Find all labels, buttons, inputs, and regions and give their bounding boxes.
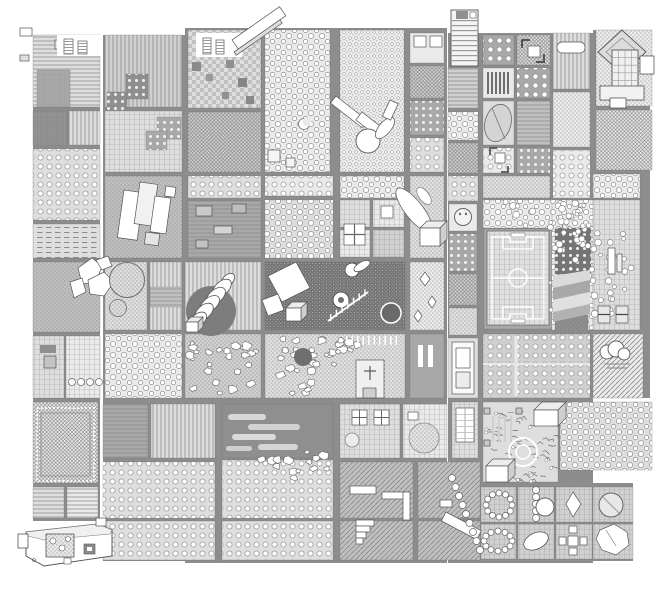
city-block-texture [67,487,98,518]
flower-tree-blob [591,310,598,317]
city-block-texture [553,92,590,147]
garden-dot [545,459,548,462]
feature-rect [408,412,418,420]
feature-rect [226,446,252,451]
feature-rect [214,226,232,234]
rock-shape [307,367,316,375]
tower-floor-line [452,45,477,46]
feature-circle [455,209,472,226]
bead-tree [507,508,513,514]
bar-mark [390,336,392,345]
city-block-texture [410,262,444,330]
city-block-texture [33,224,100,258]
bar-mark [216,45,224,46]
feature-rect [414,36,426,47]
feature-rect [430,36,442,47]
bar-mark [396,336,398,345]
bar-mark [374,336,376,345]
flower-tree-blob [605,278,611,284]
tower-floor-line [452,35,477,36]
bead-tree [473,538,480,545]
garden-dot [512,446,515,449]
feature-rect [569,548,577,555]
feature-rect [192,62,201,71]
feature-rect [232,204,246,213]
bar-mark [341,306,342,313]
bead-tree [96,379,103,386]
masterplan-drawing [0,0,670,601]
city-block-texture [410,66,444,98]
city-block-texture [188,112,261,172]
bar-mark [456,414,474,415]
flower-tree-blob [595,231,600,236]
flower-tree-blob [552,245,558,251]
bar-mark [495,72,497,94]
bar-mark [203,43,211,44]
city-block-texture [449,234,477,271]
house-wing [18,534,28,548]
city-block-texture [340,200,370,227]
feature-rect [557,42,585,53]
flower-tree-blob [622,237,626,241]
flower-tree-blob [585,243,590,248]
feature-rect [456,372,470,388]
bead-tree [483,533,489,539]
bar-mark [456,432,474,433]
city-block-texture [69,111,100,145]
bead-tree [502,547,508,553]
garden-dot [530,473,533,476]
city-block-texture [517,101,550,145]
city-block-texture [483,35,514,65]
soccer-pitch [487,231,549,325]
feature-circle-texture [409,423,439,453]
bead-tree [503,512,509,518]
bead-tree [507,533,513,539]
bead-tree [496,490,502,496]
bead-tree [488,547,494,553]
city-block-texture [340,521,413,560]
bar-mark [64,41,73,42]
bar-mark [385,336,387,345]
flower-tree-blob [559,205,566,212]
city-block-texture [103,404,148,458]
flower-tree-blob [612,285,616,289]
flower-tree-blob [559,215,563,219]
feature-rect [196,206,212,216]
city-block-texture [103,521,215,560]
flower-tree-blob [547,224,553,230]
bead-tree [507,496,513,502]
city-block-texture [107,92,127,112]
courtyard-tree [59,545,65,551]
flower-tree-blob [561,230,566,235]
city-block-texture [483,334,590,398]
bead-tree [452,484,459,491]
bead-tree [485,496,491,502]
tower-cap-box [470,12,476,18]
city-block-texture [410,101,444,135]
city-block-texture [265,200,333,258]
bead-tree [502,529,508,535]
bar-mark [336,310,337,317]
house-small-room [64,558,71,564]
feature-rect [484,408,490,414]
bar-mark [368,336,370,345]
flower-tree-blob [620,231,625,236]
city-block-texture [448,112,478,140]
house-chimney [96,518,106,526]
feature-rect [403,492,410,520]
flower-tree-blob [590,278,596,284]
bead-tree [496,514,502,520]
feature-circle [294,348,312,366]
flower-tree-blob [622,268,628,274]
feature-rect [20,55,29,61]
city-block-texture [517,68,550,98]
bar-mark [78,52,87,53]
city-block-texture [517,148,550,173]
flower-tree-blob [586,223,591,228]
bar-mark [216,51,224,52]
bead-tree [485,508,491,514]
feature-rect [226,60,234,68]
feature-rect [350,486,376,494]
feature-rect [356,526,370,532]
church-porch [610,98,626,108]
tower-floor-line [452,60,477,61]
feature-circle [465,213,467,215]
city-block-texture [37,70,70,107]
feature-rect [356,532,366,538]
feature-circle-texture [110,300,127,317]
bead-tree [449,475,456,482]
rock-shape [224,348,230,354]
city-block-texture [188,176,261,198]
city-block-texture [553,33,590,89]
bar-mark [78,46,87,47]
bead-tree [533,515,540,522]
bead-tree [456,493,463,500]
flower-tree-blob [575,212,579,216]
feature-rect [456,348,470,368]
bar-mark [510,416,512,442]
bar-mark [357,336,359,345]
feature-rect [246,96,254,104]
flower-tree-blob [576,229,581,234]
tower-floor-line [452,50,477,51]
feature-rect [248,424,300,430]
feature-rect [286,158,295,167]
tower-floor-line [452,20,477,21]
courtyard-tree [50,538,56,544]
city-block-texture [593,174,640,198]
bar-mark [203,46,211,47]
feature-rect [196,240,208,248]
axon-building-front [286,308,301,321]
city-block-texture [448,176,478,201]
bar-mark [498,416,500,442]
bar-mark [456,426,474,427]
house-dark-room-window [87,547,92,551]
bar-mark [347,302,348,309]
feature-rect [222,92,229,99]
flower-tree-blob [572,200,579,207]
tower-floor-line [452,25,477,26]
feature-rect [617,254,622,272]
feature-rect [363,388,376,398]
feature-rect [238,78,247,87]
city-block-texture [105,334,182,398]
bar-mark [203,52,211,53]
bar-mark [203,40,211,41]
bead-tree [490,512,496,518]
feature-rect [44,356,56,368]
flower-tree-blob [622,256,627,261]
rock-shape [217,391,222,395]
flower-tree-blob [569,267,573,271]
bar-mark [216,42,224,43]
flower-tree-blob [579,236,585,242]
flower-tree-blob [523,223,528,228]
courtyard-house [18,518,112,566]
city-block-texture [265,176,333,196]
city-block-texture [483,176,550,198]
rock-shape [338,338,344,344]
tower-floor-line [452,30,477,31]
bead-tree [477,547,484,554]
flower-tree-blob [595,239,602,246]
feature-rect [258,444,298,450]
bar-mark [330,314,331,321]
bead-tree [78,379,85,386]
feature-circle [618,348,630,360]
city-block-texture [418,462,480,518]
rock-shape [186,351,194,359]
bead-tree [488,529,494,535]
bead-tree [466,520,473,527]
city-block-texture [410,138,444,172]
courtyard-tree [66,537,71,542]
flower-tree-blob [580,224,585,229]
feature-circle [536,498,554,516]
feature-rect [484,440,490,446]
flower-tree-blob [563,225,567,229]
flower-tree-blob [549,308,553,312]
flower-tree-blob [607,239,613,245]
city-block-texture [33,149,100,220]
bar-mark [487,72,489,94]
city-block-texture [340,404,400,458]
bar-mark [491,72,493,94]
bar-mark [503,72,505,94]
feature-rect [569,526,577,533]
city-block-texture [448,143,478,173]
city-block-texture [33,487,64,518]
flower-tree-blob [549,220,553,224]
bead-tree [483,502,489,508]
bar-mark [346,336,348,345]
feature-circle-texture [110,263,145,298]
flower-tree-blob [607,290,613,296]
bar-mark [456,420,474,421]
feature-rect [144,232,160,246]
bead-tree [509,502,515,508]
bar-mark [504,416,506,442]
feature-rect [228,414,266,420]
feature-rect [20,28,32,36]
city-block-texture [340,176,404,198]
feature-circle [381,303,401,323]
garden-dot [516,478,519,481]
bar-mark [64,53,73,54]
bar-mark [203,49,211,50]
feature-rect [528,46,540,57]
church-chapel [640,56,654,74]
flower-tree-blob [572,257,578,263]
feature-circle [345,433,359,447]
flower-tree-blob [610,297,615,302]
city-block-texture [33,402,98,483]
feature-rect [165,186,176,197]
axon-building-front [534,410,558,426]
bead-tree [503,492,509,498]
bar-mark [418,345,423,367]
feature-rect [268,150,280,162]
bar-mark [364,289,365,296]
bead-tree [495,548,501,554]
feature-rect [580,537,587,545]
bead-tree [69,379,76,386]
flower-tree-blob [591,292,598,299]
flower-tree-blob [529,208,535,214]
flower-tree-blob [582,204,586,208]
city-block-texture [373,230,404,257]
city-block-texture [596,110,652,170]
feature-rect [608,248,615,274]
feature-rect [232,434,276,440]
garden-dot [500,415,503,418]
tower-floor-line [452,40,477,41]
bar-mark [499,72,501,94]
feature-rect [206,74,213,81]
city-block-texture [150,287,182,307]
feature-rect [381,206,393,218]
city-block-texture [146,131,167,150]
city-block-texture [448,68,478,108]
flower-tree-blob [623,287,627,291]
feature-rect [356,520,374,526]
bar-mark [64,47,73,48]
feature-rect [40,345,56,353]
bead-tree [470,529,477,536]
flower-tree-blob [513,211,520,218]
flower-tree-blob [599,253,603,257]
feature-rect [516,408,522,414]
rock-shape [234,369,240,375]
bar-mark [78,49,87,50]
tower-cap [456,11,468,19]
flower-tree-blob [628,265,634,271]
bar-mark [64,44,73,45]
feature-rect [559,537,566,545]
flower-tree-blob [503,199,508,204]
city-block [410,334,444,398]
city-block-texture [553,150,590,198]
city-block-texture [449,308,477,335]
city-block-texture [126,74,148,99]
garden-dot [528,426,531,429]
city-block-texture [222,521,333,560]
feature-rect [440,500,452,507]
flower-tree-blob [598,298,603,303]
bead-tree [463,511,470,518]
axon-building-front [186,322,198,332]
tower-building [451,10,478,66]
bead-tree [495,528,501,534]
bar-mark [359,294,360,301]
bar-mark [64,50,73,51]
flower-tree-blob [564,219,570,225]
city-block-texture [103,462,215,518]
goal-bottom [511,319,525,323]
rock-shape [208,362,212,366]
feature-circle [338,297,344,303]
bar-mark [379,336,381,345]
garden-dot [494,412,497,415]
feature-circle [459,213,461,215]
bar-mark [507,72,509,94]
bar-mark [353,298,354,305]
flower-tree-blob [591,246,597,252]
garden-dot [529,480,532,483]
bar-mark [352,336,354,345]
bar-mark [492,416,494,442]
bar-mark [456,438,474,439]
city-block-texture [449,274,477,305]
bar-mark [216,48,224,49]
masterplan-page [0,0,670,601]
bar-mark [363,336,365,345]
city-block-texture [151,404,215,458]
bead-tree [459,502,466,509]
bead-tree [87,379,94,386]
flower-tree-blob [566,213,571,218]
axon-building-front [486,466,508,482]
flower-tree-blob [516,204,520,208]
feature-rect [356,538,363,544]
feature-rect [568,536,578,546]
city-block-texture [560,402,652,470]
bead-tree [533,487,540,494]
flower-tree-blob [557,247,563,253]
city-block-texture [33,111,67,145]
tower-floor-line [452,55,477,56]
axon-building-front [420,228,440,246]
city-block-texture [66,336,100,398]
feature-rect [495,153,505,163]
bead-tree [533,494,540,501]
bead-tree [507,543,513,549]
bar-mark [78,43,87,44]
bar-mark [428,345,433,367]
bead-tree [490,492,496,498]
feature-circle [303,118,312,127]
garden-dot [549,466,552,469]
garden-dot [485,428,488,431]
goal-top [511,233,525,237]
